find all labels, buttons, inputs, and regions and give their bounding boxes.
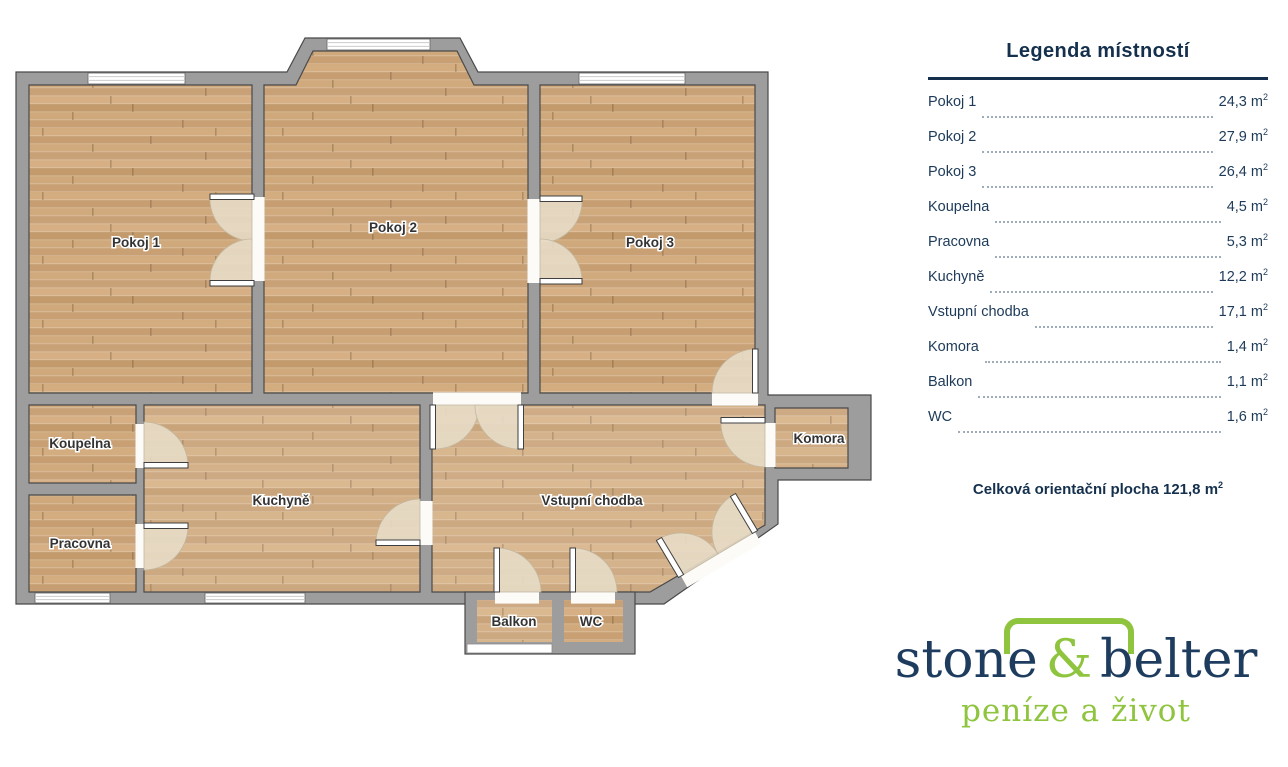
logo-ampersand: & [1046, 630, 1092, 690]
legend-row: Pokoj 326,4 m2 [928, 162, 1268, 197]
legend-row-label: Vstupní chodba [928, 304, 1029, 320]
legend-row-label: Koupelna [928, 199, 989, 215]
logo-name-stone: stone [895, 630, 1038, 690]
window-pokoj3 [579, 73, 685, 84]
leader-dots [982, 116, 1212, 118]
logo-name: stone&belter [880, 632, 1272, 689]
legend-row: Balkon1,1 m2 [928, 372, 1268, 407]
legend-row-label: Pokoj 1 [928, 94, 976, 110]
legend-row: WC1,6 m2 [928, 407, 1268, 442]
legend-row: Pracovna5,3 m2 [928, 232, 1268, 267]
label-koupelna: Koupelna [49, 436, 111, 451]
legend-row: Pokoj 124,3 m2 [928, 92, 1268, 127]
legend-row: Kuchyně12,2 m2 [928, 267, 1268, 302]
window-pokoj1 [88, 73, 185, 84]
label-wc: WC [580, 614, 603, 629]
label-komora: Komora [793, 431, 844, 446]
legend-row-label: Pokoj 3 [928, 164, 976, 180]
leader-dots [995, 256, 1220, 258]
logo-name-belter: belter [1100, 630, 1257, 690]
window-kuchyne [205, 593, 305, 603]
legend-title: Legenda místností [928, 40, 1268, 63]
legend-divider [928, 77, 1268, 80]
label-chodba: Vstupní chodba [541, 493, 643, 508]
label-kuchyne: Kuchyně [252, 493, 310, 508]
leader-dots [982, 186, 1212, 188]
leader-dots [958, 431, 1221, 433]
leader-dots [1035, 326, 1213, 328]
legend-total: Celková orientační plocha 121,8 m2 [928, 480, 1268, 498]
legend-row-label: WC [928, 409, 952, 425]
legend-row: Komora1,4 m2 [928, 337, 1268, 372]
logo-tagline: peníze a život [880, 693, 1272, 729]
legend-row: Pokoj 227,9 m2 [928, 127, 1268, 162]
leader-dots [985, 361, 1221, 363]
legend-row-label: Balkon [928, 374, 972, 390]
legend-rows: Pokoj 124,3 m2 Pokoj 227,9 m2 Pokoj 326,… [928, 92, 1268, 442]
leader-dots [995, 221, 1220, 223]
legend-row-label: Pokoj 2 [928, 129, 976, 145]
legend-row-label: Kuchyně [928, 269, 984, 285]
label-balkon: Balkon [491, 614, 536, 629]
legend-row-label: Pracovna [928, 234, 989, 250]
legend-row: Koupelna4,5 m2 [928, 197, 1268, 232]
door-leaf [210, 194, 254, 200]
leader-dots [978, 396, 1220, 398]
balkon-railing [467, 644, 552, 653]
window-pokoj2-bay [327, 39, 430, 50]
label-pokoj1: Pokoj 1 [112, 235, 161, 250]
window-pracovna [35, 593, 110, 603]
legend-row-label: Komora [928, 339, 979, 355]
floor-plan: Pokoj 1 Pokoj 2 Pokoj 3 Koupelna Pracovn… [0, 0, 900, 767]
legend-panel: Legenda místností Pokoj 124,3 m2 Pokoj 2… [928, 40, 1268, 498]
label-pokoj2: Pokoj 2 [369, 220, 417, 235]
label-pokoj3: Pokoj 3 [626, 235, 675, 250]
legend-row: Vstupní chodba17,1 m2 [928, 302, 1268, 337]
label-pracovna: Pracovna [50, 536, 111, 551]
company-logo: stone&belter peníze a život [880, 610, 1272, 729]
leader-dots [982, 151, 1212, 153]
leader-dots [990, 291, 1212, 293]
